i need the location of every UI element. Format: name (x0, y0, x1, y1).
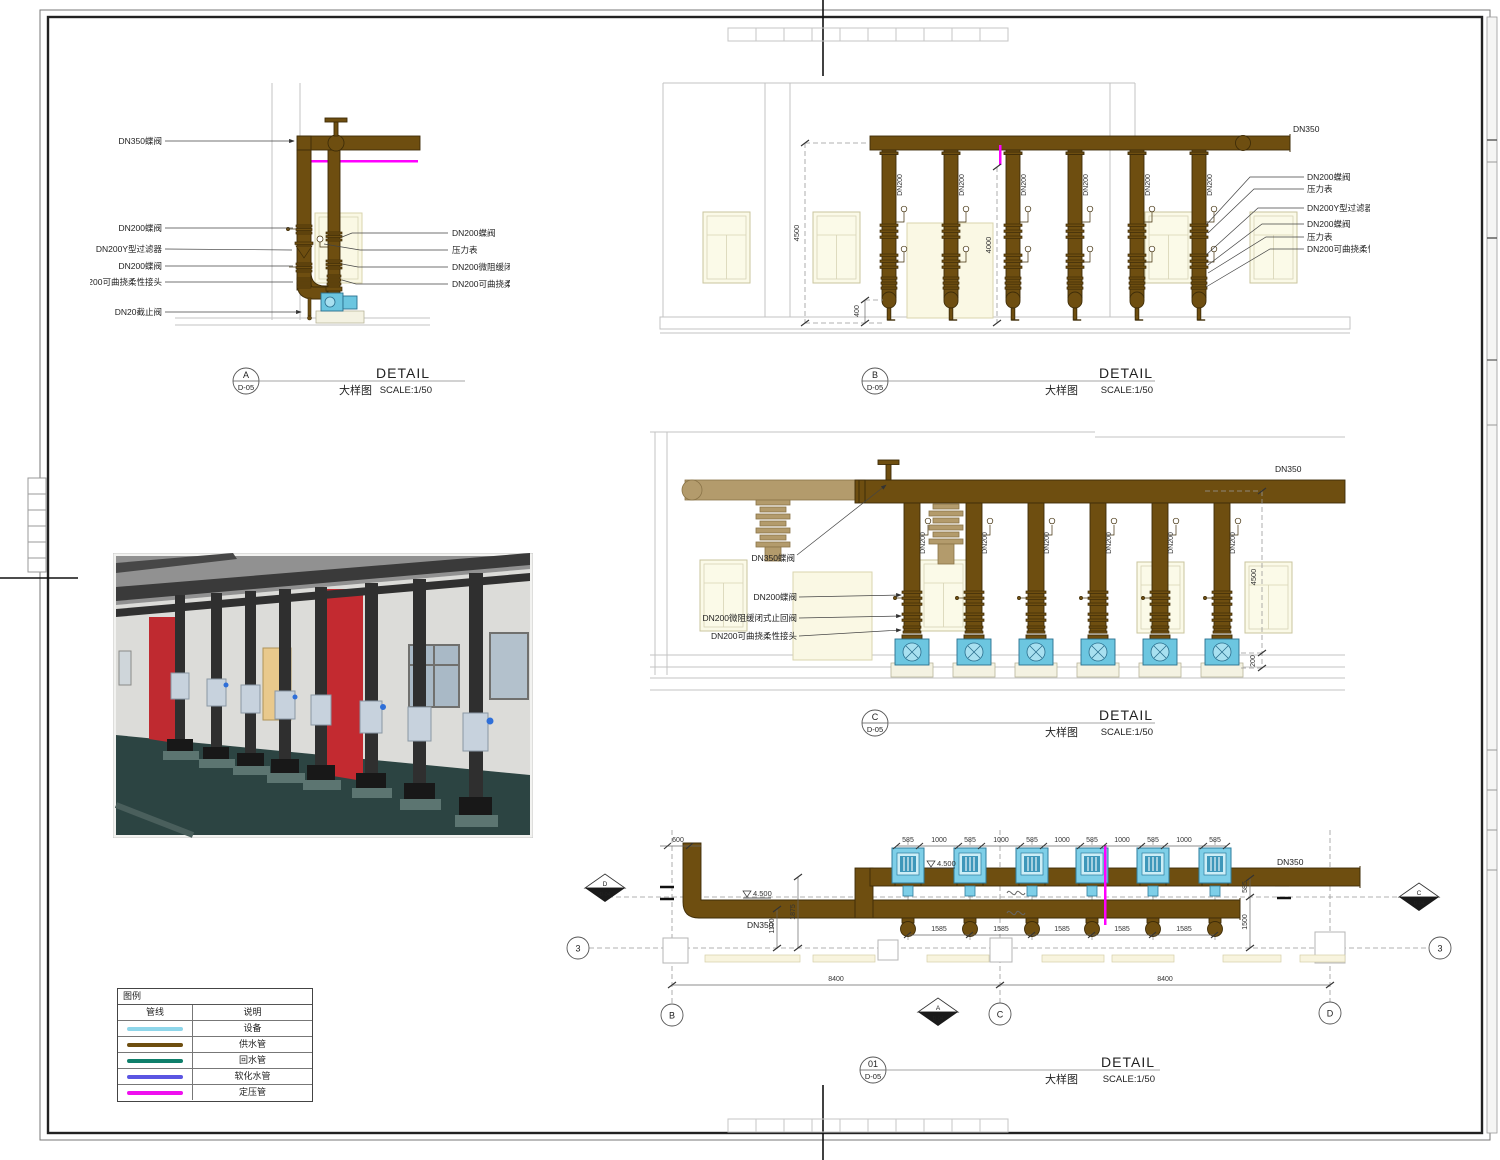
dim-400: 400 (854, 305, 861, 317)
dn200-riser-pump-4 (1077, 503, 1119, 677)
legend-label: 供水管 (193, 1037, 312, 1052)
detail-tag: B (872, 370, 878, 380)
plan-pump-1 (892, 848, 924, 896)
detail-c-drawing: DN200 DN200 DN200 DN200 DN200 DN200 DN35… (645, 425, 1355, 745)
floor-band (660, 317, 1350, 329)
title-block-b: B D-05 DETAIL 大样图 SCALE:1/50 (862, 365, 1155, 397)
riser-label: DN200 (1106, 532, 1113, 554)
title-block-01: 01 D-05 DETAIL 大样图 SCALE:1/50 (860, 1054, 1160, 1086)
legend-label: 定压管 (193, 1085, 312, 1100)
riser-label: DN200 (1230, 532, 1237, 554)
pipe-label-dn350-2: DN350 (1277, 857, 1304, 867)
legend-line-swatch (127, 1091, 183, 1095)
riser-label: DN200 (1145, 174, 1152, 196)
drain-stub (308, 298, 311, 316)
label-dn350-valve: DN350蝶阀 (119, 136, 162, 146)
label-dn20-stop-valve: DN20截止阀 (115, 307, 162, 317)
pipe-end-cap (682, 480, 702, 500)
section-marker-right: C D-04 (1399, 883, 1439, 911)
title-block-a: A D-05 DETAIL 大样图 SCALE:1/50 (233, 365, 465, 397)
span-dimensions: 8400 8400 (668, 976, 1334, 988)
riser-label: DN200 (1168, 532, 1175, 554)
pump-pedestal (316, 311, 364, 323)
grid-c: C (997, 1010, 1004, 1020)
legend-col-desc: 说明 (193, 1005, 312, 1020)
pressure-pipe-line (1104, 845, 1107, 925)
detail-scale: SCALE:1/50 (1103, 1074, 1155, 1085)
detail-subtitle: 大样图 (339, 383, 372, 397)
level-mark: 4.500 (937, 859, 956, 868)
header-label: DN350 (1293, 124, 1320, 134)
legend-row-return: 回水管 (118, 1053, 312, 1069)
legend-title: 图例 (118, 989, 312, 1005)
detail-a-drawing: DN350蝶阀 DN200蝶阀 DN200Y型过滤器 DN200蝶阀 DN200… (90, 65, 510, 410)
plan-pump-4 (1076, 848, 1108, 896)
grid-3-left: 3 (575, 944, 580, 954)
riser-label: DN200 (1044, 532, 1051, 554)
dim-1000: 1000 (993, 837, 1009, 844)
dim-8400: 8400 (828, 976, 844, 983)
grid-3-right: 3 (1437, 944, 1442, 954)
detail-subtitle: 大样图 (1045, 383, 1078, 397)
legend-row-softened: 软化水管 (118, 1069, 312, 1085)
wall-lines (660, 83, 1350, 333)
detail-tag: A (243, 370, 249, 380)
detail-title: DETAIL (1101, 1054, 1155, 1070)
pipe-flange (1236, 136, 1251, 151)
tan-valve-stack-1 (756, 500, 790, 561)
legend-row-equipment: 设备 (118, 1021, 312, 1037)
label-y-strainer: DN200Y型过滤器 (1307, 203, 1370, 213)
supply-header (870, 134, 1290, 152)
top-scale-bar (728, 28, 1008, 41)
sheet-ref: D-05 (238, 383, 254, 392)
window (920, 560, 967, 631)
dim-8400-2: 8400 (1157, 976, 1173, 983)
detail-title: DETAIL (376, 365, 430, 381)
label-dn200-valve: DN200蝶阀 (754, 592, 797, 602)
pressure-pipe-line (308, 160, 418, 163)
label-check-valve: DN200微阻缓闭式止回阀 (452, 262, 510, 272)
detail-subtitle: 大样图 (1045, 1072, 1078, 1086)
header-pipe (297, 136, 420, 150)
window (703, 212, 750, 283)
render-window-2 (490, 633, 528, 699)
dim-585: 585 (1209, 837, 1221, 844)
suction-header-pipe (870, 868, 1360, 886)
detail-scale: SCALE:1/50 (380, 385, 432, 396)
level-mark: 4.500 (753, 889, 772, 898)
detail-scale: SCALE:1/50 (1101, 727, 1153, 738)
sheet-ref: D-05 (867, 383, 883, 392)
right-title-strip (1487, 17, 1497, 1133)
label-check-valve: DN200微阻缓闭式止回阀 (703, 613, 797, 623)
render-window-3 (119, 651, 131, 685)
pump-casing (325, 297, 335, 307)
riser-label: DN200 (1021, 174, 1028, 196)
floor-strips (705, 955, 1345, 962)
dim-1585: 1585 (1176, 926, 1192, 933)
riser-label: DN200 (1207, 174, 1214, 196)
dim-1585: 1585 (931, 926, 947, 933)
header-valve-handle (878, 460, 899, 465)
legend-row-pressurize: 定压管 (118, 1085, 312, 1100)
section-ref: D-04 (600, 892, 611, 898)
plan-pump-6 (1199, 848, 1231, 896)
legend-label: 软化水管 (193, 1069, 312, 1084)
dim-1100: 1100 (769, 918, 776, 933)
plan-pump-2 (954, 848, 986, 896)
detail-title: DETAIL (1099, 707, 1153, 723)
section-letter: D (603, 881, 608, 888)
section-letter: A (936, 1005, 941, 1012)
drain-valve (308, 316, 312, 320)
valve-handle (325, 118, 347, 122)
legend-line-swatch (127, 1043, 183, 1047)
dim-1500: 1500 (1242, 914, 1249, 930)
left-riser-run (297, 150, 311, 290)
dim-4500: 4500 (1249, 569, 1258, 586)
dim-1000: 1000 (931, 837, 947, 844)
door (793, 572, 872, 660)
detail-tag: 01 (868, 1059, 878, 1069)
legend-header-row: 管线 说明 (118, 1005, 312, 1021)
dim-585: 585 (1026, 837, 1038, 844)
detail-b-drawing: DN200 DN200 DN200 DN200 DN200 DN200 4500… (650, 75, 1370, 405)
pump-motor (343, 296, 357, 309)
legend-line-swatch (127, 1075, 183, 1079)
labels-left: DN350蝶阀 DN200蝶阀 DN200Y型过滤器 DN200蝶阀 DN200… (90, 136, 301, 317)
label-dn200-valve-2: DN200蝶阀 (119, 261, 162, 271)
legend-table: 图例 管线 说明 设备 供水管 回水管 软化水管 定压管 (117, 988, 313, 1102)
riser-label: DN200 (920, 532, 927, 554)
top-dimensions: 600 585 1000 585 1000 585 1000 585 1000 … (660, 837, 1230, 849)
detail-subtitle: 大样图 (1045, 725, 1078, 739)
legend-col-line: 管线 (118, 1005, 193, 1020)
render-3d-image (113, 553, 533, 838)
label-flex-joint: DN200可曲挠柔性接头 (711, 631, 797, 641)
dim-1585: 1585 (1054, 926, 1070, 933)
section-ref: D-04 (933, 1016, 944, 1022)
section-marker-left: D D-04 (585, 874, 625, 902)
grid-b: B (669, 1011, 675, 1021)
riser-label: DN200 (959, 174, 966, 196)
grid-d: D (1327, 1009, 1334, 1019)
dim-585: 585 (1147, 837, 1159, 844)
dim-585: 585 (1086, 837, 1098, 844)
bottom-scale-bar (728, 1119, 1008, 1132)
sheet-ref: D-05 (867, 725, 883, 734)
plan-pump-3 (1016, 848, 1048, 896)
legend-line-swatch (127, 1027, 183, 1031)
legend-line-swatch (127, 1059, 183, 1063)
supply-header (855, 460, 1345, 503)
render-red-column-2 (327, 589, 363, 781)
detail-scale: SCALE:1/50 (1101, 385, 1153, 396)
label-dn350-valve: DN350蝶阀 (752, 553, 795, 563)
spacing-dimensions: 1585 1585 1585 1585 1585 (904, 926, 1218, 938)
label-pressure-gauge-2: 压力表 (1307, 232, 1333, 242)
plan-drawing: 4.500 4.500 DN350 DN350 600 585 1000 585 (555, 815, 1485, 1105)
dim-4500: 4500 (792, 225, 801, 242)
section-marker-bottom: A D-04 (918, 998, 958, 1026)
dn200-riser-pump-3 (1015, 503, 1057, 677)
label-flex-joint: DN200可曲挠柔性接头 (1307, 244, 1370, 254)
discharge-riser (328, 150, 340, 293)
riser-label: DN200 (897, 174, 904, 196)
dim-585: 585 (964, 837, 976, 844)
dim-600: 600 (672, 837, 684, 844)
label-dn200-valve-1: DN200蝶阀 (119, 223, 162, 233)
window (1250, 212, 1297, 283)
sheet-ref: D-05 (865, 1072, 881, 1081)
dim-585: 585 (902, 837, 914, 844)
section-ref: D-04 (1414, 901, 1425, 907)
title-block-c: C D-05 DETAIL 大样图 SCALE:1/50 (862, 707, 1155, 739)
detail-tag: C (872, 712, 879, 722)
dim-1000: 1000 (1176, 837, 1192, 844)
dn200-riser-pump-6 (1201, 503, 1243, 677)
dim-4000: 4000 (984, 237, 993, 254)
riser-label: DN200 (982, 532, 989, 554)
legend-row-supply: 供水管 (118, 1037, 312, 1053)
dim-1585: 1585 (993, 926, 1009, 933)
dim-585-v: 585 (1242, 881, 1249, 893)
label-pressure-gauge: 压力表 (1307, 184, 1333, 194)
dim-1000: 1000 (1114, 837, 1130, 844)
label-dn200-valve: DN200蝶阀 (1307, 172, 1350, 182)
dim-200: 200 (1250, 655, 1257, 667)
label-pressure-gauge: 压力表 (452, 245, 478, 255)
section-letter: C (1417, 890, 1422, 897)
label-dn200-valve-2: DN200蝶阀 (1307, 219, 1350, 229)
plan-pump-5 (1137, 848, 1169, 896)
header-valve-stem (886, 464, 891, 480)
riser-label: DN200 (1083, 174, 1090, 196)
dim-1875: 1875 (790, 904, 797, 920)
tee-boss (328, 135, 344, 151)
dim-1585: 1585 (1114, 926, 1130, 933)
label-flex-joint-r: DN200可曲挠柔性接头 (452, 279, 510, 289)
window (813, 212, 860, 283)
break-line (1007, 891, 1025, 894)
valve-stem (334, 122, 338, 136)
legend-label: 回水管 (193, 1053, 312, 1068)
pressure-pipe-line (999, 145, 1002, 165)
legend-label: 设备 (193, 1021, 312, 1036)
label-y-strainer: DN200Y型过滤器 (96, 244, 163, 254)
label-dn200-valve-r: DN200蝶阀 (452, 228, 495, 238)
dim-1000: 1000 (1054, 837, 1070, 844)
detail-title: DETAIL (1099, 365, 1153, 381)
header-label: DN350 (1275, 464, 1302, 474)
drawing-sheet: DN350蝶阀 DN200蝶阀 DN200Y型过滤器 DN200蝶阀 DN200… (0, 0, 1500, 1160)
left-edge-table (28, 478, 46, 572)
label-flex-joint: DN200可曲挠柔性接头 (90, 277, 162, 287)
